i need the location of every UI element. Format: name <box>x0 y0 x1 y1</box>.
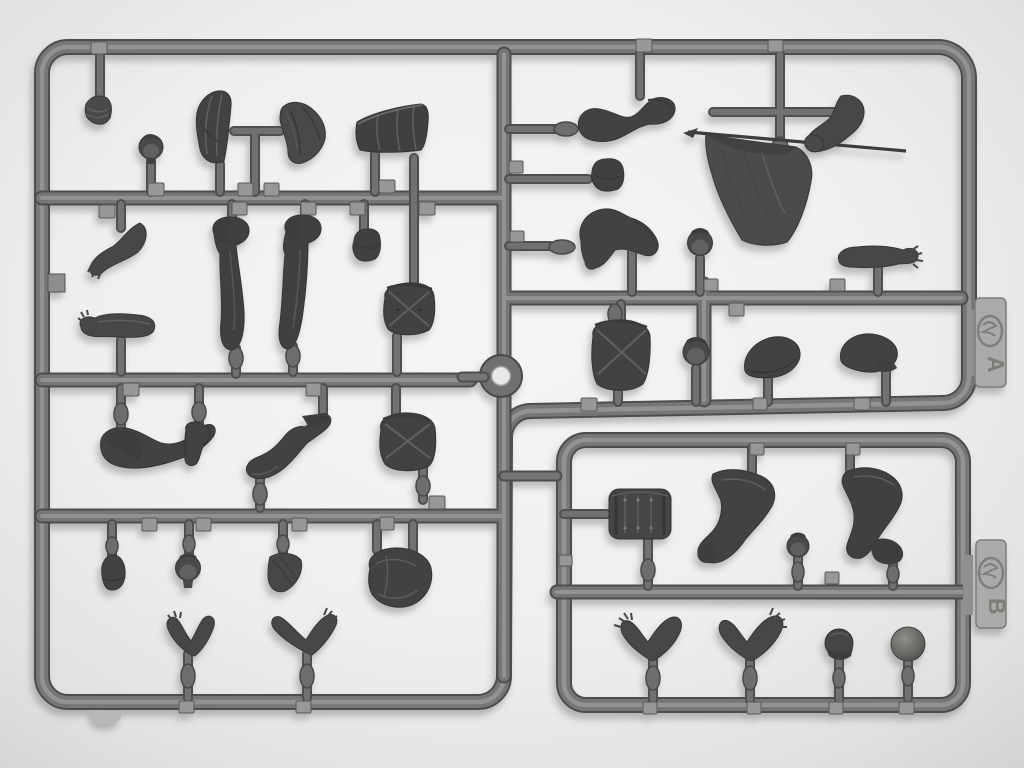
svg-text:A: A <box>983 356 1009 373</box>
svg-text:B: B <box>984 598 1010 615</box>
